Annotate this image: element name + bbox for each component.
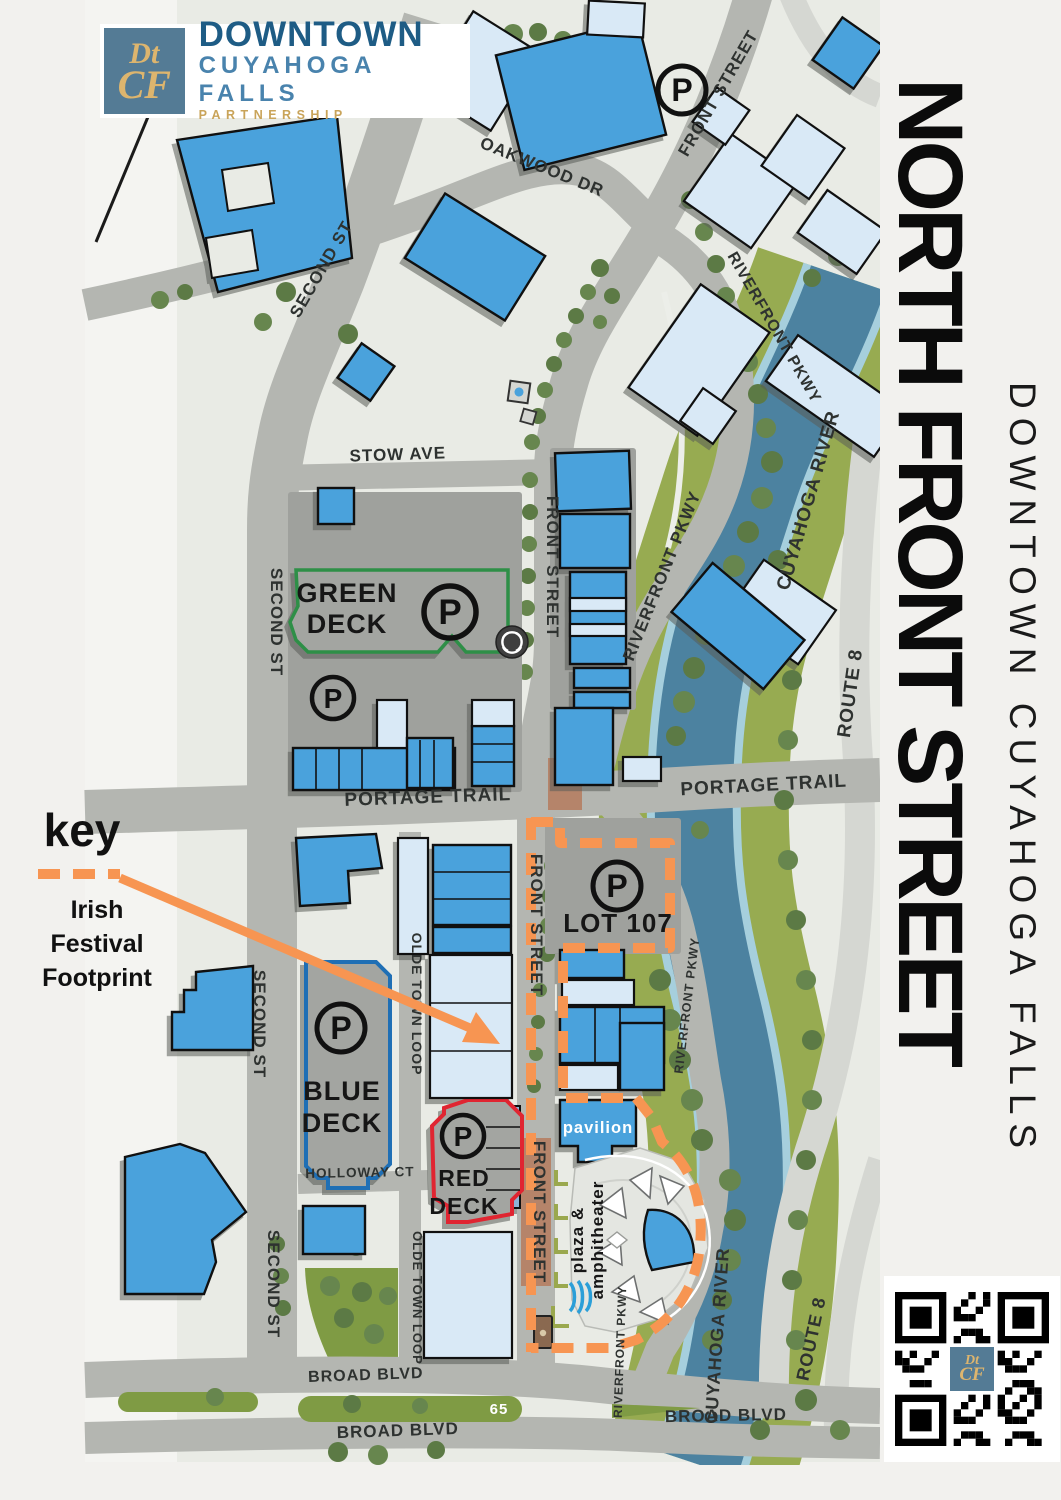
key-line-2: Festival	[50, 930, 143, 958]
street-label-second-bottom: SECOND ST	[264, 1230, 283, 1338]
qr-code: Dt CF	[884, 1276, 1060, 1462]
qr-center-logo: Dt CF	[950, 1347, 994, 1391]
parking-icon: P	[330, 1010, 351, 1046]
map-poster: { "logo": { "mark_line1": "Dt", "mark_li…	[0, 0, 1061, 1500]
logo-mark-line2: CF	[118, 67, 171, 103]
street-label-front-lower: FRONT STREET	[527, 854, 546, 996]
blue-deck	[306, 962, 390, 1188]
poster-subtitle: DOWNTOWN CUYAHOGA FALLS	[1001, 382, 1043, 1157]
parking-icon: P	[438, 593, 461, 632]
fountain-icon	[508, 381, 531, 404]
red-deck-label-1: RED	[438, 1165, 490, 1191]
key-title: key	[44, 804, 121, 856]
logo-title: DOWNTOWN	[199, 17, 470, 52]
street-label-second-low: SECOND ST	[250, 970, 269, 1078]
plaza-label-2: amphitheater	[588, 1181, 607, 1300]
key-line-3: Footprint	[42, 964, 152, 992]
stow-ave-road	[274, 472, 553, 478]
street-label-front-bottom: FRONT STREET	[530, 1141, 549, 1283]
blue-deck-label-1: BLUE	[303, 1076, 381, 1106]
red-deck-label-2: DECK	[429, 1193, 498, 1219]
dtcf-logo-mark: Dt CF	[104, 28, 185, 114]
green-deck-label-2: DECK	[307, 609, 388, 639]
key-line-1: Irish	[71, 896, 124, 924]
street-label-holloway: HOLLOWAY CT	[305, 1164, 415, 1181]
green-deck-label-1: GREEN	[296, 578, 397, 608]
street-label-olde-town-2: OLDE TOWN LOOP	[410, 1231, 425, 1365]
knot-icon	[496, 626, 528, 658]
partnership-logo: Dt CF DOWNTOWN CUYAHOGA FALLS PARTNERSHI…	[100, 24, 470, 118]
street-label-broad-3: BROAD BLVD	[665, 1405, 787, 1426]
plaza-label-1: plaza &	[568, 1207, 587, 1274]
logo-tagline: PARTNERSHIP	[199, 107, 470, 125]
pavilion-label: pavilion	[563, 1119, 633, 1137]
parking-icon: P	[671, 72, 692, 108]
parking-icon: P	[324, 683, 343, 714]
blue-deck-label-2: DECK	[302, 1108, 383, 1138]
lot-107-label: LOT 107	[563, 908, 673, 938]
route-65-marker: 65	[490, 1401, 509, 1418]
city-map: P P P P P P OAKWOOD DR FRONT STREET SECO…	[0, 0, 880, 1465]
street-label-stow: STOW AVE	[349, 443, 446, 465]
qr-logo-line2: CF	[959, 1367, 984, 1383]
poster-title: NORTH FRONT STREET	[884, 78, 976, 1278]
parking-icon: P	[454, 1121, 473, 1152]
logo-subtitle: CUYAHOGA FALLS	[199, 52, 470, 107]
parking-icon: P	[606, 868, 627, 904]
street-label-front-mid: FRONT STREET	[543, 496, 562, 638]
street-label-second-mid: SECOND ST	[267, 568, 286, 676]
